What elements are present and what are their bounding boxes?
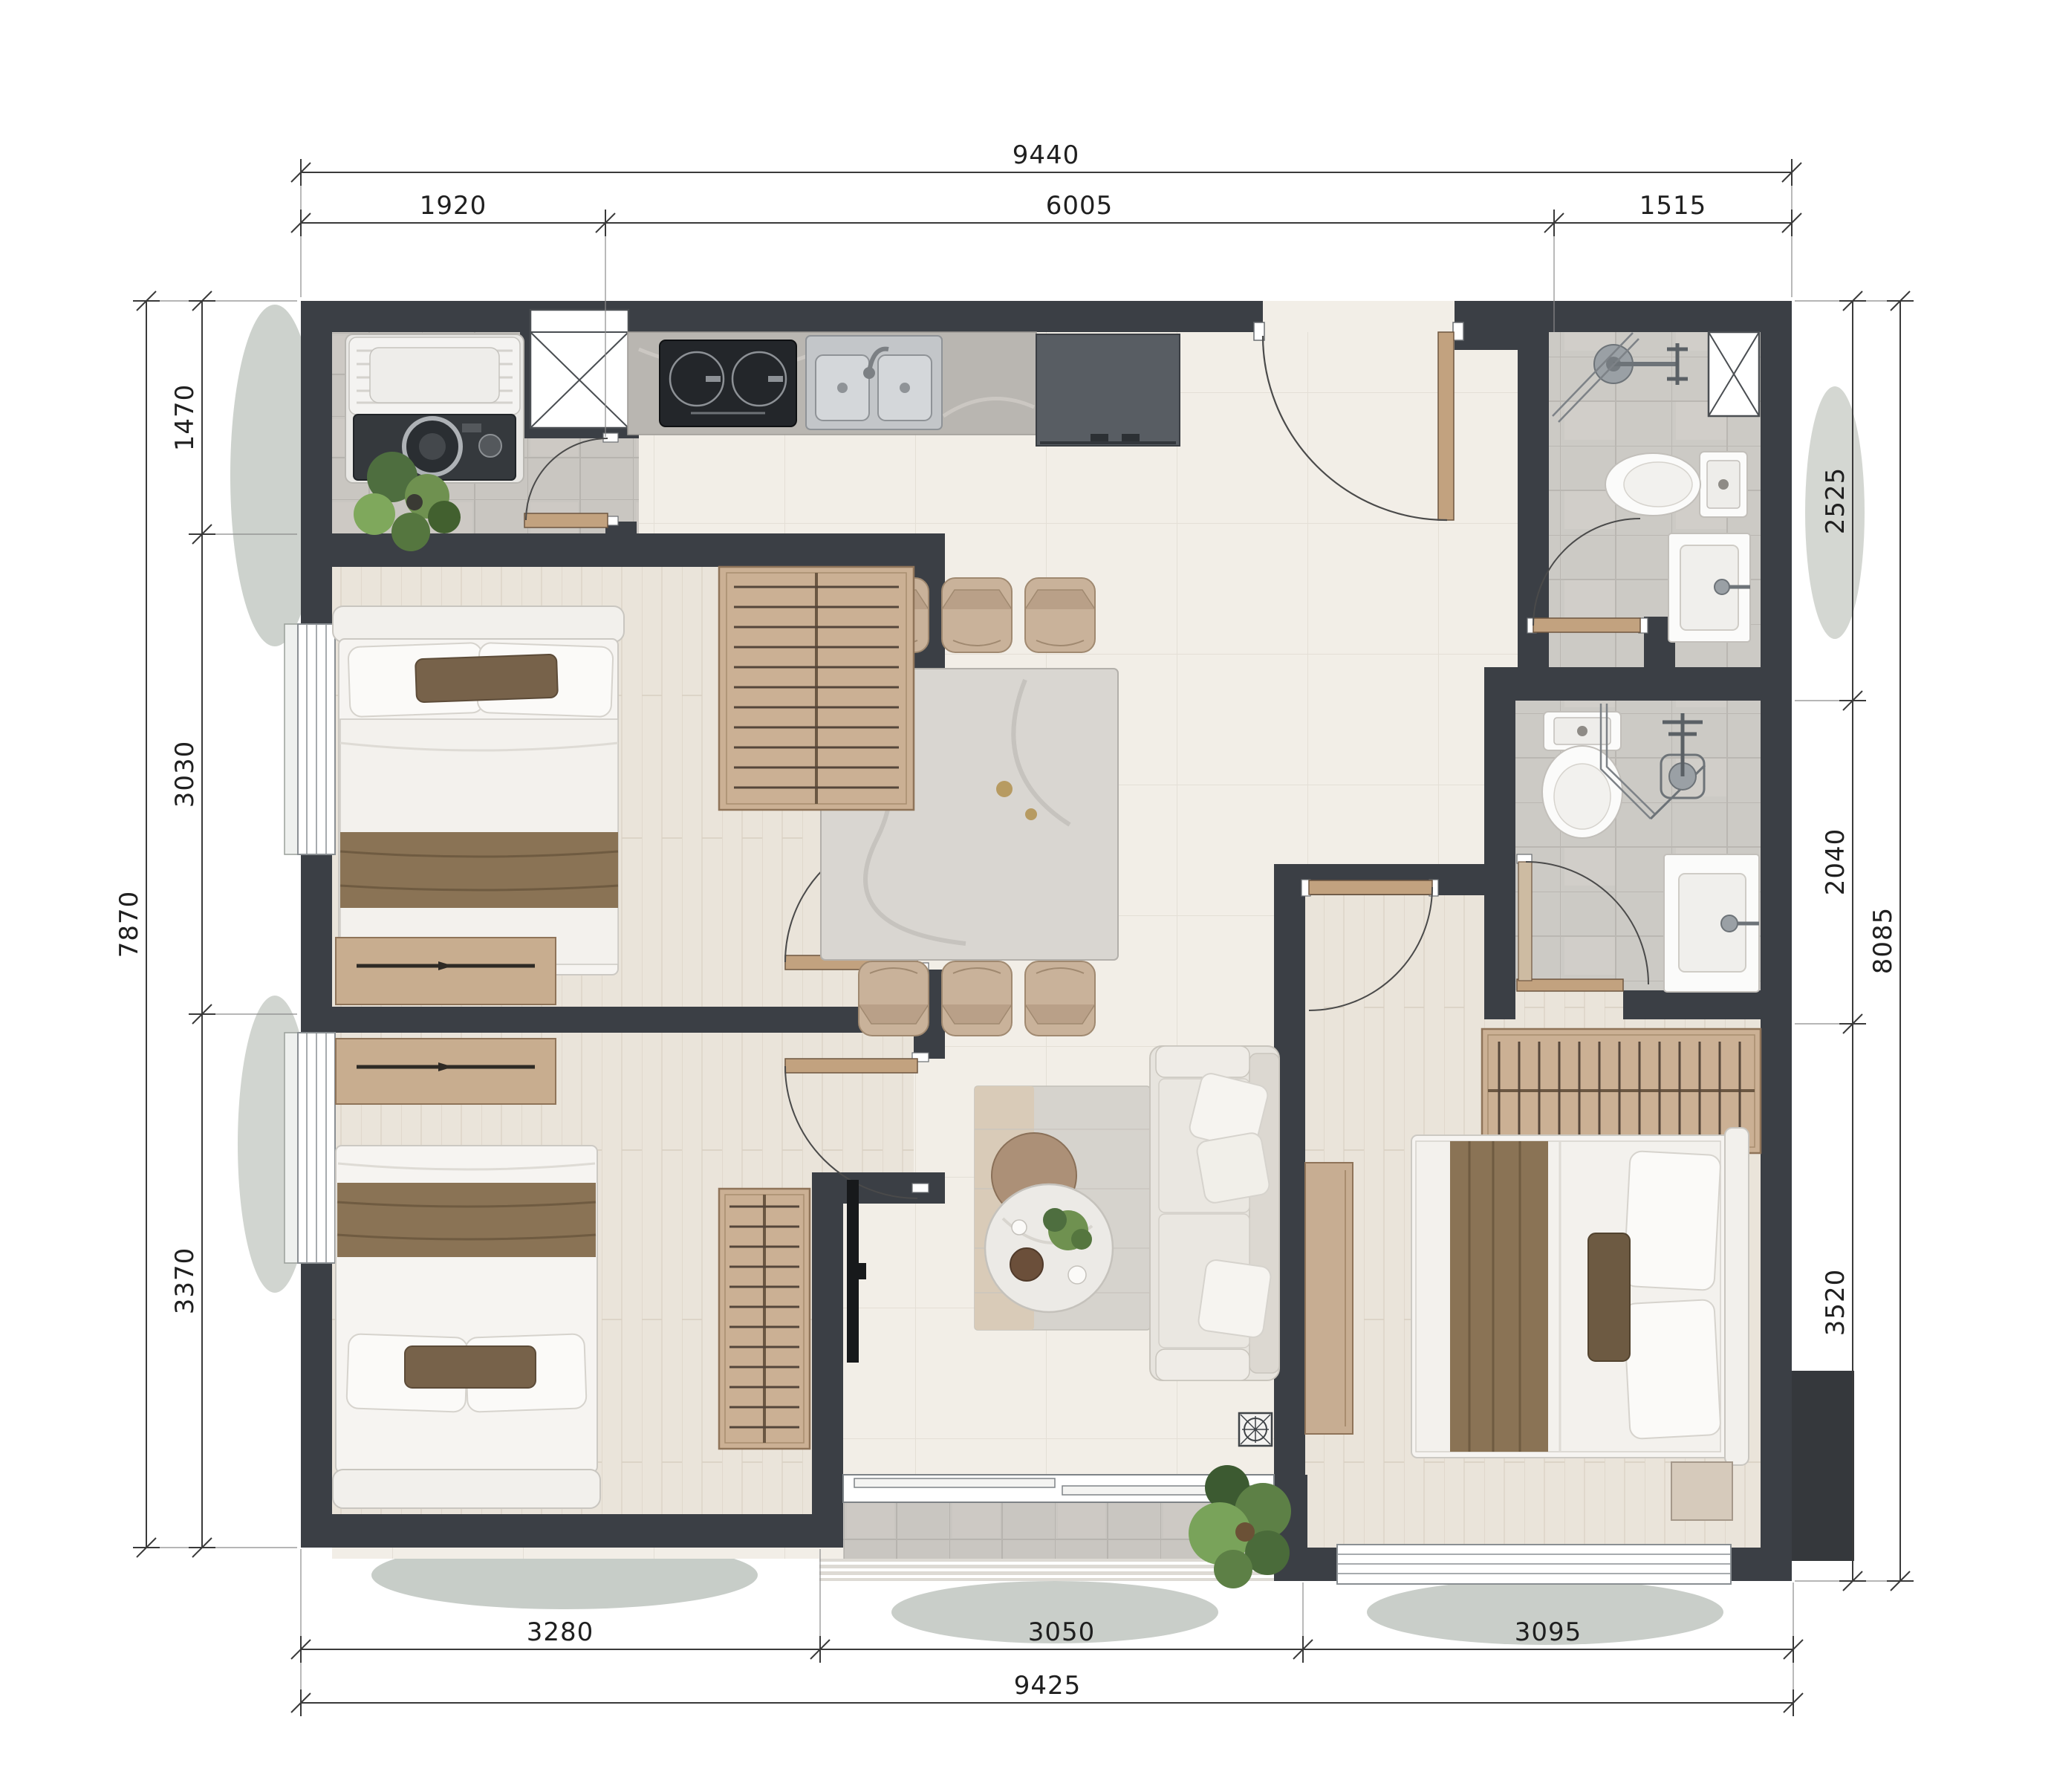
bedroom2-dresser — [336, 938, 556, 1004]
shaft-bathroom1 — [1709, 332, 1759, 416]
dim-top-seg2: 6005 — [1046, 191, 1114, 221]
dim-bottom-seg2: 3050 — [1028, 1617, 1096, 1647]
dim-left-seg2: 3030 — [170, 741, 200, 808]
dim-right-seg1: 2525 — [1821, 467, 1850, 535]
dim-right-seg3: 3520 — [1821, 1269, 1850, 1337]
wall-bedroom3-living — [812, 1204, 843, 1548]
dim-left-seg1: 1470 — [170, 384, 200, 452]
master-bed — [1411, 1128, 1749, 1465]
dim-left-seg3: 3370 — [170, 1247, 200, 1315]
kitchen — [628, 332, 1180, 446]
sofa — [1150, 1046, 1279, 1380]
dim-top-seg3: 1515 — [1639, 191, 1707, 221]
bedroom3-wardrobe — [719, 1189, 810, 1449]
dim-top-total: 9440 — [1013, 140, 1080, 170]
shaft-utility — [530, 310, 628, 428]
master-tv-console — [1305, 1163, 1353, 1434]
wall-bath1-bath2-divider — [1484, 667, 1792, 701]
cooktop — [660, 340, 796, 426]
wall-right — [1761, 332, 1792, 1581]
master-wardrobe — [1482, 1029, 1761, 1153]
bedroom2-window — [285, 624, 335, 854]
bedroom3-window — [285, 1033, 335, 1263]
kitchen-sink — [806, 336, 942, 429]
dim-right-total: 8085 — [1868, 907, 1898, 975]
bedroom3-bed — [333, 1146, 600, 1508]
refrigerator — [1036, 334, 1180, 446]
bedroom3-dresser — [336, 1039, 556, 1104]
bathroom1-toilet — [1605, 452, 1747, 517]
bathroom1-vanity — [1668, 533, 1750, 642]
dim-right-seg2: 2040 — [1821, 828, 1850, 896]
master-nightstand — [1671, 1462, 1732, 1520]
floor-plan-canvas: 9440 1920 6005 1515 3280 3050 3095 9425 … — [0, 0, 2054, 1789]
ac-ledge — [1792, 1371, 1854, 1561]
dim-top-seg1: 1920 — [420, 191, 487, 221]
floor-plan: 9440 1920 6005 1515 3280 3050 3095 9425 … — [0, 0, 2054, 1789]
entry-threshold-floor — [1263, 301, 1455, 332]
bedroom2-bed — [333, 606, 624, 975]
wall-left — [301, 332, 332, 1548]
dim-bottom-seg1: 3280 — [527, 1617, 594, 1647]
dim-bottom-seg3: 3095 — [1515, 1617, 1582, 1647]
wall-utility-door-stub — [605, 522, 637, 567]
bathroom2-vanity — [1664, 854, 1759, 992]
wall-bathroom2-left — [1484, 667, 1515, 1019]
bathroom2-toilet — [1542, 712, 1622, 838]
dim-left-total: 7870 — [114, 891, 144, 958]
wall-bathroom2-bottom — [1623, 990, 1792, 1019]
master-bedroom-window — [1337, 1545, 1731, 1584]
wall-bedroom2-bedroom3 — [301, 1007, 945, 1033]
wall-bottom-bedroom3 — [301, 1514, 843, 1548]
wall-top-left — [301, 301, 1263, 332]
dim-left — [133, 291, 215, 1557]
dim-bottom-total: 9425 — [1014, 1671, 1082, 1701]
balcony-floor-drain — [1239, 1413, 1272, 1446]
bedroom2-wardrobe — [719, 567, 914, 810]
washing-machine — [345, 334, 524, 483]
